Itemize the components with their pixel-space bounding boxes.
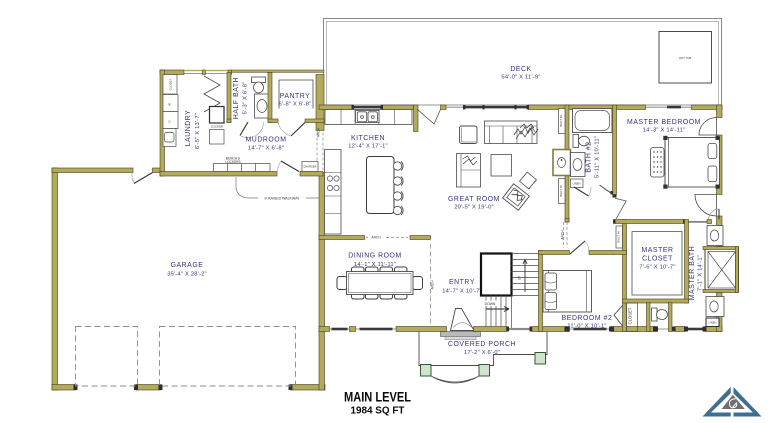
svg-text:1984 SQ FT: 1984 SQ FT bbox=[351, 405, 406, 417]
svg-text:ARCH: ARCH bbox=[561, 230, 565, 240]
svg-text:CHARGER: CHARGER bbox=[304, 165, 317, 169]
svg-text:ARCH: ARCH bbox=[431, 280, 435, 290]
svg-text:11'-0" X 10'-1": 11'-0" X 10'-1" bbox=[567, 324, 606, 330]
svg-text:UP: UP bbox=[518, 276, 522, 280]
svg-text:BUILT IN: BUILT IN bbox=[617, 231, 621, 242]
svg-text:35'-4" X 28'-2": 35'-4" X 28'-2" bbox=[167, 272, 207, 278]
svg-text:54'-0" X 11'-9": 54'-0" X 11'-9" bbox=[501, 75, 540, 81]
svg-text:KITCHEN: KITCHEN bbox=[351, 135, 385, 142]
svg-text:LINEN: LINEN bbox=[709, 321, 717, 325]
svg-text:ENTRY: ENTRY bbox=[449, 279, 475, 286]
svg-text:ARCH: ARCH bbox=[317, 127, 321, 137]
svg-text:MAIN LEVEL: MAIN LEVEL bbox=[344, 390, 411, 405]
svg-text:12'-4" X 17'-1": 12'-4" X 17'-1" bbox=[348, 144, 388, 150]
svg-text:LOCKER: LOCKER bbox=[211, 125, 224, 129]
svg-text:MASTER BATH: MASTER BATH bbox=[689, 246, 696, 301]
svg-text:BATH #2: BATH #2 bbox=[586, 141, 593, 172]
svg-text:7'-6" X 10'-7": 7'-6" X 10'-7" bbox=[639, 265, 675, 271]
svg-text:14'-7" X 10'-7": 14'-7" X 10'-7" bbox=[442, 289, 482, 295]
svg-text:5'-11" X 10'-11": 5'-11" X 10'-11" bbox=[595, 136, 601, 178]
svg-text:20'-5" X 19'-0": 20'-5" X 19'-0" bbox=[454, 205, 494, 211]
svg-text:LINEN: LINEN bbox=[573, 182, 581, 186]
svg-text:HALF BATH: HALF BATH bbox=[233, 77, 240, 119]
svg-text:14'-7" X 6'-8": 14'-7" X 6'-8" bbox=[248, 146, 284, 152]
svg-text:W: W bbox=[168, 103, 172, 106]
svg-text:COVERED PORCH: COVERED PORCH bbox=[448, 341, 516, 348]
svg-text:CLOSET: CLOSET bbox=[169, 78, 173, 90]
svg-text:14'-1" X 11'-11": 14'-1" X 11'-11" bbox=[354, 262, 396, 268]
svg-text:7'-1" X 14'-1": 7'-1" X 14'-1" bbox=[698, 255, 704, 291]
svg-text:CLOSET: CLOSET bbox=[628, 307, 633, 324]
svg-text:PANTRY: PANTRY bbox=[280, 93, 311, 100]
svg-text:LAUNDRY: LAUNDRY bbox=[185, 110, 192, 147]
svg-text:BEDROOM #2: BEDROOM #2 bbox=[562, 315, 613, 322]
svg-text:6'-5" X 13'-7": 6'-5" X 13'-7" bbox=[195, 113, 201, 149]
svg-text:BUILT IN: BUILT IN bbox=[559, 185, 563, 196]
svg-text:DINING ROOM: DINING ROOM bbox=[348, 253, 402, 260]
svg-text:ARCH: ARCH bbox=[371, 235, 381, 239]
svg-text:BUILT IN: BUILT IN bbox=[559, 115, 563, 126]
svg-text:MUDROOM: MUDROOM bbox=[246, 137, 287, 144]
svg-text:5'-3" X 6'-8": 5'-3" X 6'-8" bbox=[243, 82, 249, 115]
svg-text:CLOSET: CLOSET bbox=[642, 256, 673, 263]
svg-text:GARAGE: GARAGE bbox=[171, 262, 204, 269]
svg-text:6'-8" X 6'-8": 6'-8" X 6'-8" bbox=[279, 102, 312, 108]
svg-text:17'-2" X 6'-0": 17'-2" X 6'-0" bbox=[464, 350, 500, 356]
svg-text:HOT TUB: HOT TUB bbox=[679, 56, 691, 60]
svg-text:MASTER: MASTER bbox=[641, 247, 673, 254]
svg-text:DOWN: DOWN bbox=[485, 302, 496, 306]
svg-text:14'-3" X 14'-11": 14'-3" X 14'-11" bbox=[643, 128, 686, 134]
svg-text:9' RAISED WALKWAY: 9' RAISED WALKWAY bbox=[265, 197, 301, 201]
svg-text:GREAT ROOM: GREAT ROOM bbox=[448, 196, 500, 203]
svg-text:MASTER BEDROOM: MASTER BEDROOM bbox=[627, 119, 701, 126]
svg-text:DECK: DECK bbox=[510, 66, 531, 73]
